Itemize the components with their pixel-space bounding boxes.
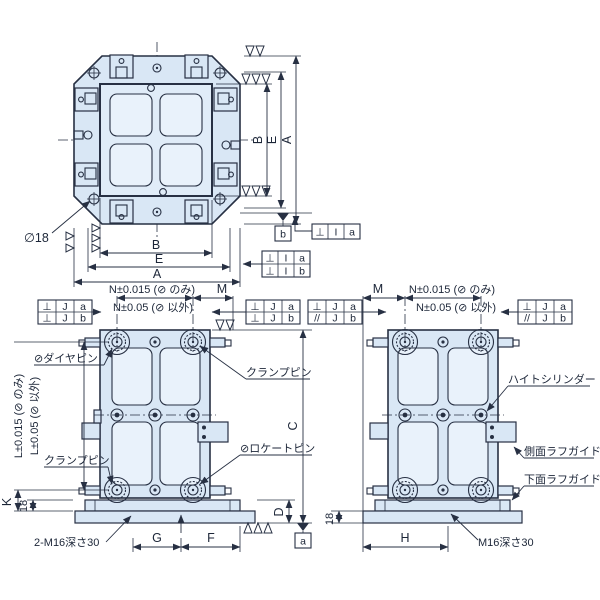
dim-E-vertical: E [265, 136, 279, 144]
pocket [160, 144, 202, 186]
dim-E-horizontal: E [155, 252, 163, 266]
fcf-datum: a [350, 301, 356, 313]
dim-C: C [286, 421, 300, 430]
dim-18: 18 [18, 500, 30, 512]
side-tab [82, 423, 100, 439]
base-lower [75, 511, 255, 523]
side-rough-guide-label: 側面ラフガイド [524, 445, 600, 458]
dim-M: M [373, 282, 383, 296]
tap-label: M16深さ30 [478, 536, 534, 549]
base-lower [363, 511, 522, 523]
fcf-symbol: ⊥ [265, 266, 274, 278]
fcf-datum: b [299, 266, 305, 278]
side-tab [94, 410, 101, 423]
fcf-symbol: ⊥ [315, 227, 324, 239]
fcf-tolerance: J [270, 313, 275, 325]
dim-L-tight: L±0.015 (⊘ のみ) [12, 374, 25, 458]
clamp-pin-label-top: クランプピン [246, 366, 312, 379]
pocket [110, 144, 152, 186]
dim-A-vertical: A [280, 135, 294, 144]
fcf-datum: b [80, 313, 86, 325]
fcf-tolerance: J [332, 313, 337, 325]
pocket [398, 422, 438, 485]
fcf-tolerance: J [270, 301, 275, 313]
pocket [112, 348, 152, 405]
side-tab [370, 423, 388, 439]
fcf-tolerance: J [62, 313, 67, 325]
datum-b-label: b [280, 229, 286, 241]
dim-B-vertical: B [251, 136, 265, 144]
front-view: N±0.015 (⊘ のみ) M N±0.05 (⊘ 以外) L±0.015 (… [0, 282, 315, 552]
pocket [110, 94, 152, 136]
fcf-symbol: ⊥ [42, 301, 51, 313]
dim-B-horizontal: B [152, 238, 160, 252]
hole-diameter-label: ∅18 [24, 231, 49, 245]
fcf-datum: b [288, 313, 294, 325]
dim-A-horizontal: A [153, 267, 162, 281]
pocket [398, 348, 438, 405]
fcf-datum: a [299, 253, 305, 265]
height-cylinder-label: ハイトシリンダー [508, 372, 596, 386]
fcf-datum: a [288, 301, 294, 313]
fcf-top-single: ⊥ I a [295, 217, 360, 239]
dim-N-tight: N±0.015 (⊘ のみ) [409, 283, 495, 296]
dim-M: M [217, 282, 227, 296]
dim-D: D [272, 507, 286, 516]
dim-K: K [0, 497, 14, 506]
side-guide-block [486, 422, 516, 442]
side-view: M N±0.015 (⊘ のみ) N±0.05 (⊘ 以外) 18 H M16深… [308, 282, 600, 552]
fcf-symbol: ⊥ [312, 301, 321, 313]
dim-L-loose: L±0.05 (⊘ 以外) [28, 377, 41, 455]
fcf-tolerance: I [335, 227, 338, 239]
technical-drawing: B E A B E A ∅18 b [0, 0, 600, 600]
fcf-side-right: ⊥ J a // J b [501, 300, 572, 325]
fcf-tolerance: J [332, 301, 337, 313]
fcf-tolerance: J [62, 301, 67, 313]
fcf-symbol: // [314, 313, 320, 325]
base-upper [85, 500, 240, 511]
fcf-front-right: ⊥ J a ⊥ J b [212, 300, 300, 325]
fcf-symbol: ⊥ [250, 313, 259, 325]
fcf-datum: b [350, 313, 356, 325]
fcf-symbol: ⊥ [522, 301, 531, 313]
pocket [112, 422, 152, 485]
fcf-tolerance: I [285, 253, 288, 265]
datum-b: b [275, 213, 291, 241]
locate-pin-label: ⊘ロケートピン [240, 442, 315, 455]
drawing-sheet: B E A B E A ∅18 b [0, 0, 600, 600]
fcf-front-left: ⊥ J a ⊥ J b [38, 300, 101, 325]
side-guide-block [198, 422, 228, 442]
fcf-side-left: ⊥ J a // J b [308, 300, 386, 325]
fcf-symbol: ⊥ [250, 301, 259, 313]
pocket [160, 348, 200, 405]
pocket [160, 94, 202, 136]
fcf-tolerance: J [542, 301, 547, 313]
datum-a-label: a [300, 536, 306, 548]
fcf-symbol: ⊥ [42, 313, 51, 325]
dim-N-loose: N±0.05 (⊘ 以外) [113, 301, 193, 314]
fcf-datum: a [560, 301, 566, 313]
tap-label: 2-M16深さ30 [34, 536, 99, 549]
fcf-datum: a [80, 301, 86, 313]
fcf-top-stacked: ⊥ I a ⊥ I b [243, 251, 310, 278]
dim-18: 18 [324, 513, 336, 525]
base-upper [375, 500, 510, 511]
dim-N-tight: N±0.015 (⊘ のみ) [109, 283, 195, 296]
top-view-plan: B E A B E A ∅18 b [24, 42, 360, 287]
dim-F: F [207, 531, 215, 545]
dim-G: G [152, 531, 162, 545]
leader-phi18 [52, 201, 90, 233]
fcf-symbol: ⊥ [265, 253, 274, 265]
datum-a: a [295, 523, 311, 548]
dim-H: H [400, 531, 409, 545]
fcf-symbol: // [524, 313, 530, 325]
pocket [448, 422, 488, 485]
pocket [448, 348, 488, 405]
pocket [160, 422, 200, 485]
fcf-tolerance: J [542, 313, 547, 325]
fcf-datum: a [349, 227, 355, 239]
clamp-pin-label-bottom: クランプピン [44, 454, 110, 467]
dim-N-loose: N±0.05 (⊘ 以外) [416, 301, 496, 314]
bottom-rough-guide-label: 下面ラフガイド [524, 473, 600, 486]
dia-pin-label: ⊘ダイヤピン [34, 351, 98, 365]
fcf-tolerance: I [285, 266, 288, 278]
fcf-datum: b [560, 313, 566, 325]
